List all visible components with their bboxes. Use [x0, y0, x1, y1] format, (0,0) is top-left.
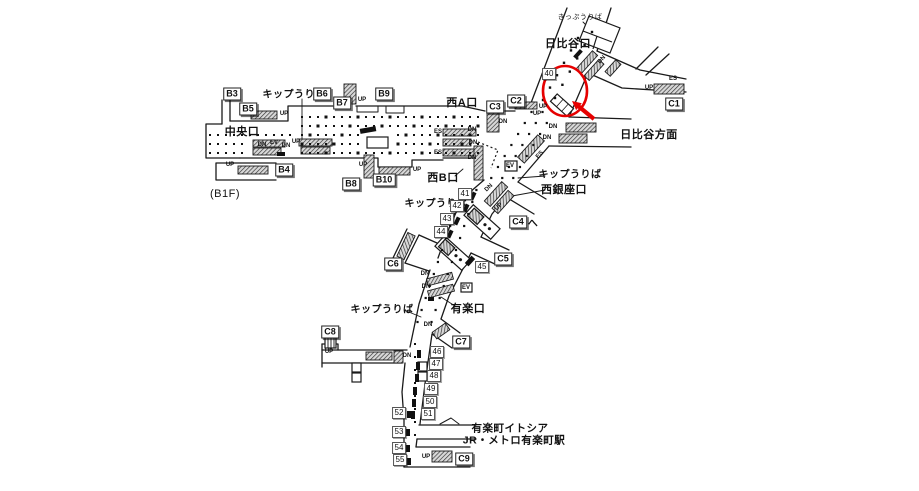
ad-position-51: 51 [421, 408, 435, 420]
ad-position-41: 41 [458, 188, 472, 200]
ad-position-52: 52 [392, 407, 406, 419]
direction-label-up: UP [494, 202, 504, 212]
direction-label-ev: EV [462, 285, 470, 291]
label-floor: (B1F) [210, 188, 240, 200]
direction-label-up: UP [292, 139, 300, 145]
ad-position-45: 45 [475, 261, 489, 273]
direction-label-ev: EV [270, 140, 278, 146]
exit-box-C4: C4 [509, 216, 527, 229]
direction-label-dn: DN [403, 353, 412, 359]
direction-label-dn: DN [258, 142, 267, 148]
direction-label-up: UP [539, 104, 547, 110]
label-west-a-exit: 西A口 [446, 94, 477, 110]
exit-box-C1: C1 [665, 98, 683, 111]
direction-label-dn: DN [499, 119, 508, 125]
ad-position-46: 46 [430, 346, 444, 358]
label-ticket-office-top: きっぷうりば [558, 12, 603, 22]
label-jr-metro-yurakucho: JR・メトロ有楽町駅 [463, 433, 565, 448]
exit-box-C8: C8 [321, 326, 339, 339]
direction-label-es: ES [434, 150, 442, 156]
label-nishiginza-exit: 西銀座口 [541, 181, 587, 197]
direction-label-up: UP [280, 111, 288, 117]
station-floor-map: B3B5B6B7B9B4B8B10C1C2C3C4C5C6C7C8C940414… [0, 0, 919, 491]
label-central-exit: 中央口 [225, 123, 260, 139]
exit-box-B6: B6 [313, 88, 331, 101]
exit-box-B8: B8 [342, 178, 360, 191]
ad-position-40: 40 [542, 68, 556, 80]
direction-label-dn: DN [543, 135, 552, 141]
direction-label-dn: DN [469, 140, 478, 146]
exit-box-C9: C9 [455, 453, 473, 466]
ad-position-50: 50 [423, 396, 437, 408]
direction-label-es: ES [669, 76, 677, 82]
ad-position-43: 43 [440, 213, 454, 225]
direction-label-up: UP [226, 162, 234, 168]
ad-position-48: 48 [427, 370, 441, 382]
direction-label-up: UP [533, 111, 541, 117]
direction-label-dn: DN [549, 124, 558, 130]
exit-box-B4: B4 [275, 164, 293, 177]
exit-box-C5: C5 [494, 253, 512, 266]
direction-label-es: ES [434, 129, 442, 135]
exit-box-C7: C7 [452, 336, 470, 349]
direction-label-ev: EV [506, 163, 514, 169]
direction-label-dn: DN [468, 155, 477, 161]
label-west-b-exit: 西B口 [427, 169, 458, 185]
exit-box-B5: B5 [239, 103, 257, 116]
direction-label-up: UP [359, 162, 367, 168]
exit-box-B10: B10 [373, 174, 396, 187]
direction-label-dn: DN [468, 127, 477, 133]
exit-box-B9: B9 [375, 88, 393, 101]
direction-label-dn: DN [424, 322, 433, 328]
exit-box-C2: C2 [507, 95, 525, 108]
map-overlays: B3B5B6B7B9B4B8B10C1C2C3C4C5C6C7C8C940414… [0, 0, 919, 491]
label-ticket-office-south: キップうりば [351, 301, 414, 316]
direction-label-up: UP [413, 167, 421, 173]
ad-position-42: 42 [450, 200, 464, 212]
exit-box-C6: C6 [384, 258, 402, 271]
direction-label-up: UP [645, 85, 653, 91]
direction-label-up: UP [325, 349, 333, 355]
direction-label-es: ES [535, 150, 545, 160]
ad-position-49: 49 [424, 383, 438, 395]
direction-label-up: UP [422, 454, 430, 460]
direction-label-dn: DN [282, 143, 291, 149]
label-to-c4: へ [528, 215, 539, 230]
ad-position-53: 53 [392, 426, 406, 438]
exit-box-C3: C3 [486, 101, 504, 114]
exit-box-B3: B3 [223, 88, 241, 101]
direction-label-dn: DN [421, 271, 430, 277]
direction-label-dn: DN [422, 284, 431, 290]
label-hibiya-exit: 日比谷口 [545, 35, 591, 51]
ad-position-47: 47 [429, 358, 443, 370]
ad-position-54: 54 [392, 442, 406, 454]
direction-label-dn: DN [597, 55, 607, 65]
exit-box-B7: B7 [333, 97, 351, 110]
direction-label-up: UP [358, 97, 366, 103]
label-ticket-office-nishiginza: キップうりば [539, 166, 602, 181]
ad-position-44: 44 [434, 226, 448, 238]
ad-position-55: 55 [393, 454, 407, 466]
direction-label-dn: DN [484, 183, 494, 193]
label-hibiya-direction: 日比谷方面 [620, 126, 678, 142]
label-yuraku-exit: 有楽口 [451, 300, 486, 316]
